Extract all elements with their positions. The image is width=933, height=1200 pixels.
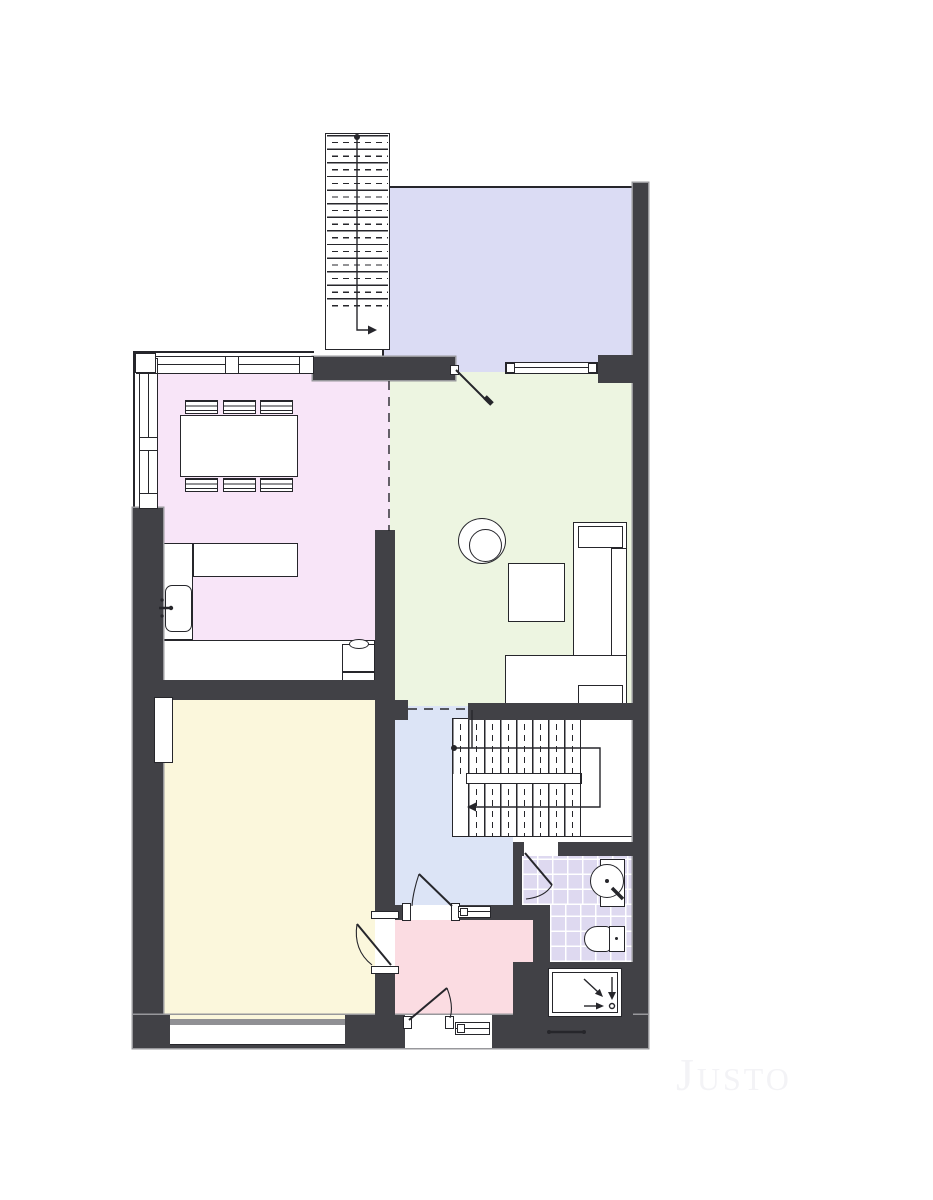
exterior-stair-walkline [354, 134, 377, 335]
threshold-marker [547, 1030, 586, 1034]
shower-drain-arrows [584, 977, 616, 1010]
floor-plan-page: { "plan": { "type": "apartment-floor-pla… [0, 0, 933, 1200]
bedroom-door [356, 924, 391, 965]
terrace-door [456, 370, 492, 404]
interior-stair-walkline [451, 710, 600, 812]
bathroom-door [525, 853, 552, 899]
front-door [409, 988, 451, 1020]
plan-linework [0, 0, 933, 1200]
washbasin-tap [612, 888, 623, 899]
hallway-entry-door [412, 874, 452, 906]
kitchen-faucet [159, 598, 173, 617]
watermark: Justo [676, 1048, 916, 1104]
